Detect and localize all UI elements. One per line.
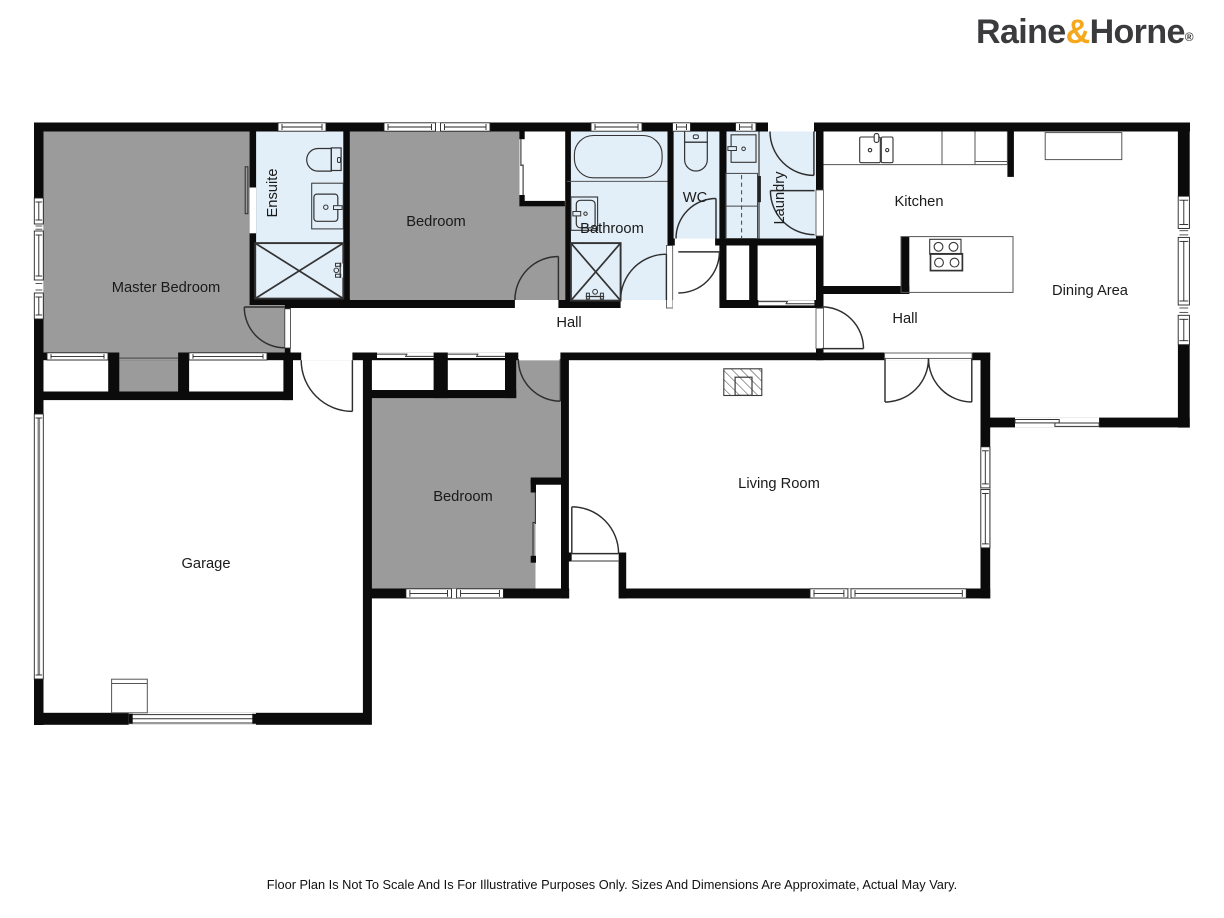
svg-text:Living Room: Living Room	[738, 476, 820, 492]
svg-text:Bathroom: Bathroom	[580, 221, 644, 237]
svg-text:Ensuite: Ensuite	[265, 169, 281, 218]
svg-text:Bedroom: Bedroom	[433, 489, 493, 505]
svg-text:WC: WC	[683, 190, 708, 206]
svg-text:Kitchen: Kitchen	[895, 194, 944, 210]
svg-text:Bedroom: Bedroom	[406, 214, 466, 230]
svg-text:Master Bedroom: Master Bedroom	[112, 280, 221, 296]
svg-text:Dining Area: Dining Area	[1052, 283, 1129, 299]
svg-text:Hall: Hall	[556, 315, 581, 331]
svg-text:Garage: Garage	[182, 556, 231, 572]
svg-text:Hall: Hall	[892, 311, 917, 327]
svg-text:Laundry: Laundry	[772, 171, 788, 225]
